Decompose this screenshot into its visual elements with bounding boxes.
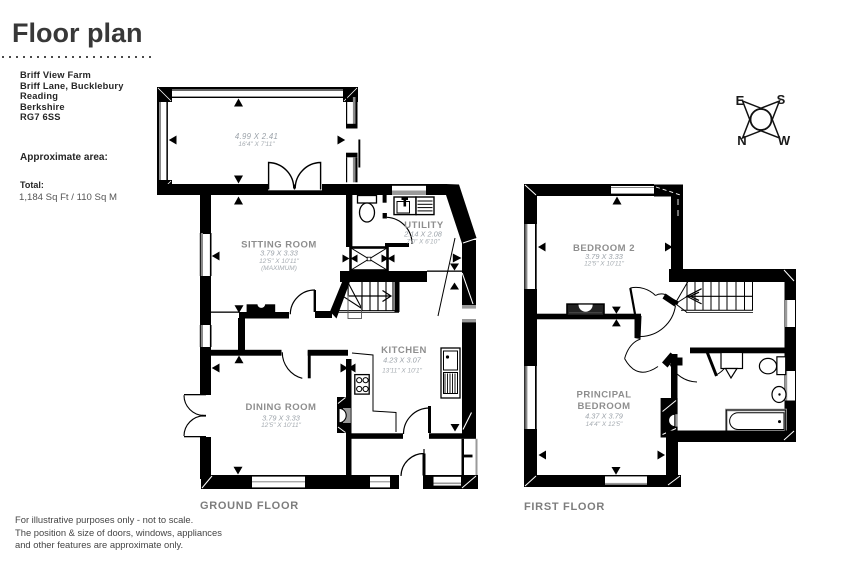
svg-text:BEDROOM: BEDROOM <box>577 401 630 412</box>
svg-text:PRINCIPAL: PRINCIPAL <box>577 390 632 401</box>
svg-text:12'5" X 10'11": 12'5" X 10'11" <box>259 258 300 265</box>
svg-text:12'5" X 10'11": 12'5" X 10'11" <box>261 422 302 429</box>
svg-text:13'11" X 10'1": 13'11" X 10'1" <box>382 368 423 375</box>
svg-text:KITCHEN: KITCHEN <box>381 345 427 356</box>
svg-text:W: W <box>778 133 791 148</box>
svg-text:4.99 X 2.41: 4.99 X 2.41 <box>235 132 278 141</box>
svg-text:14'4" X 12'5": 14'4" X 12'5" <box>586 421 623 428</box>
svg-text:7'0" X 6'10": 7'0" X 6'10" <box>406 239 440 246</box>
svg-text:N: N <box>737 133 746 148</box>
svg-text:16'4" X 7'11": 16'4" X 7'11" <box>238 141 275 148</box>
svg-text:3.79 X 3.33: 3.79 X 3.33 <box>262 413 301 422</box>
svg-text:3.79 X 3.33: 3.79 X 3.33 <box>260 249 299 258</box>
svg-text:2.14 X 2.08: 2.14 X 2.08 <box>403 230 443 239</box>
svg-text:(MAXIMUM): (MAXIMUM) <box>261 265 297 272</box>
svg-text:S: S <box>777 92 786 107</box>
svg-text:4.23 X 3.07: 4.23 X 3.07 <box>383 356 422 365</box>
svg-text:DINING ROOM: DINING ROOM <box>246 402 317 413</box>
svg-text:4.37 X 3.79: 4.37 X 3.79 <box>585 412 623 421</box>
svg-text:E: E <box>736 93 745 108</box>
svg-text:12'5" X 10'11": 12'5" X 10'11" <box>584 261 625 268</box>
